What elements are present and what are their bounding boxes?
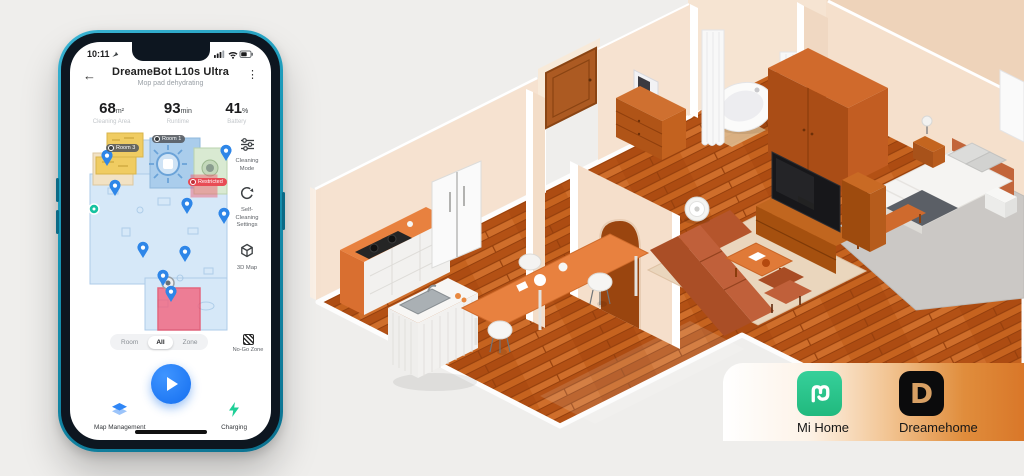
mi-home-app[interactable]: Mi Home — [797, 371, 842, 435]
room-label-pill[interactable]: Room 1 — [152, 135, 185, 143]
room-icon — [108, 145, 114, 151]
stat-unit: min — [181, 108, 192, 115]
stat-label: Cleaning Area — [93, 119, 131, 125]
power-button[interactable] — [282, 192, 285, 230]
phone-bezel: 10:11 ← DreameBot L10s Ultra Mop pad deh — [61, 33, 280, 449]
volume-down-button[interactable] — [56, 210, 59, 234]
nav-label: Charging — [221, 424, 247, 431]
no-go-zone-button[interactable]: No-Go Zone — [231, 334, 265, 353]
no-go-zone-label: No-Go Zone — [231, 347, 265, 353]
signal-icon — [214, 51, 224, 59]
device-status: Mop pad dehydrating — [70, 80, 271, 87]
button-label: Cleaning Mode — [228, 158, 266, 173]
house-icon — [190, 179, 196, 185]
hall-door — [546, 48, 596, 128]
bottom-nav: Map Management Charging — [70, 402, 271, 431]
map-side-buttons: Cleaning Mode Self-Cleaning Settings — [228, 138, 266, 272]
battery-icon — [240, 51, 253, 58]
shower-curtain-left — [702, 30, 724, 146]
stat-runtime: 93min Runtime — [164, 100, 192, 125]
stat-value: 68 — [99, 100, 116, 117]
robot-vacuum — [684, 197, 710, 224]
restricted-label: Restricted — [198, 179, 223, 185]
app-badge-card: Mi Home D Dreamehome — [723, 363, 1024, 441]
home-indicator[interactable] — [135, 430, 207, 434]
tab-all[interactable]: All — [148, 336, 172, 349]
dreamehome-letter: D — [910, 377, 933, 410]
phone: 10:11 ← DreameBot L10s Ultra Mop pad deh — [58, 30, 283, 452]
device-title: DreameBot L10s Ultra — [70, 66, 271, 78]
sliders-icon — [240, 138, 255, 151]
dining-chair-far — [519, 254, 541, 270]
page: 10:11 ← DreameBot L10s Ultra Mop pad deh — [0, 0, 1024, 476]
phone-screen: 10:11 ← DreameBot L10s Ultra Mop pad deh — [70, 42, 271, 440]
cube-3d-icon — [240, 243, 254, 258]
charging-button[interactable]: Charging — [221, 402, 247, 431]
dreamehome-app[interactable]: D Dreamehome — [899, 371, 944, 435]
self-clean-icon — [240, 186, 254, 200]
mode-selector-row: Room All Zone No-Go Zone — [96, 334, 265, 353]
charging-bolt-icon — [228, 402, 240, 417]
stat-label: Runtime — [164, 119, 192, 125]
status-bar: 10:11 — [70, 47, 271, 61]
mode-tabs: Room All Zone — [110, 334, 208, 350]
mi-home-icon — [797, 371, 842, 416]
room-label: Room 3 — [116, 145, 135, 151]
stat-unit: m² — [116, 108, 124, 115]
room-icon — [154, 136, 160, 142]
mijia-logo-icon — [805, 379, 835, 409]
self-cleaning-settings-button[interactable]: Self-Cleaning Settings — [230, 186, 264, 230]
stat-value: 41 — [225, 100, 242, 117]
stat-unit: % — [242, 108, 248, 115]
cleaning-mode-button[interactable]: Cleaning Mode — [228, 138, 266, 173]
menu-button[interactable]: ⋮ — [247, 68, 258, 81]
no-go-zone-icon — [243, 334, 254, 345]
stat-label: Battery — [225, 119, 248, 125]
stat-battery: 41% Battery — [225, 100, 248, 125]
start-cleaning-button[interactable] — [151, 364, 191, 404]
status-icons — [214, 49, 254, 59]
floor-plan — [88, 128, 240, 336]
tab-zone[interactable]: Zone — [175, 339, 206, 346]
wifi-icon — [229, 53, 237, 59]
map-management-button[interactable]: Map Management — [94, 402, 146, 431]
status-time: 10:11 — [87, 49, 110, 59]
hallway — [538, 38, 600, 132]
map-no-go-zone[interactable] — [158, 288, 200, 330]
bedroom-door — [1000, 70, 1024, 142]
tab-room[interactable]: Room — [113, 339, 146, 346]
cleaning-map[interactable]: Room 3 Room 1 Restricted — [88, 128, 240, 336]
room-label: Room 1 — [162, 136, 181, 142]
dreamehome-icon: D — [899, 371, 944, 416]
play-icon — [167, 377, 178, 391]
app-header: DreameBot L10s Ultra Mop pad dehydrating — [70, 66, 271, 87]
3d-map-button[interactable]: 3D Map — [237, 243, 257, 273]
volume-up-button[interactable] — [56, 178, 59, 202]
button-label: Self-Cleaning Settings — [230, 207, 264, 230]
restricted-label-pill[interactable]: Restricted — [188, 178, 227, 186]
room-label-pill[interactable]: Room 3 — [106, 144, 139, 152]
layers-icon — [111, 402, 128, 417]
dreamehome-label: Dreamehome — [899, 420, 944, 435]
mi-home-label: Mi Home — [797, 420, 842, 435]
button-label: 3D Map — [237, 265, 257, 273]
stats-row: 68m² Cleaning Area 93min Runtime 41% Bat… — [76, 100, 265, 125]
stat-value: 93 — [164, 100, 181, 117]
location-icon — [112, 51, 119, 58]
stat-cleaning-area: 68m² Cleaning Area — [93, 100, 131, 125]
